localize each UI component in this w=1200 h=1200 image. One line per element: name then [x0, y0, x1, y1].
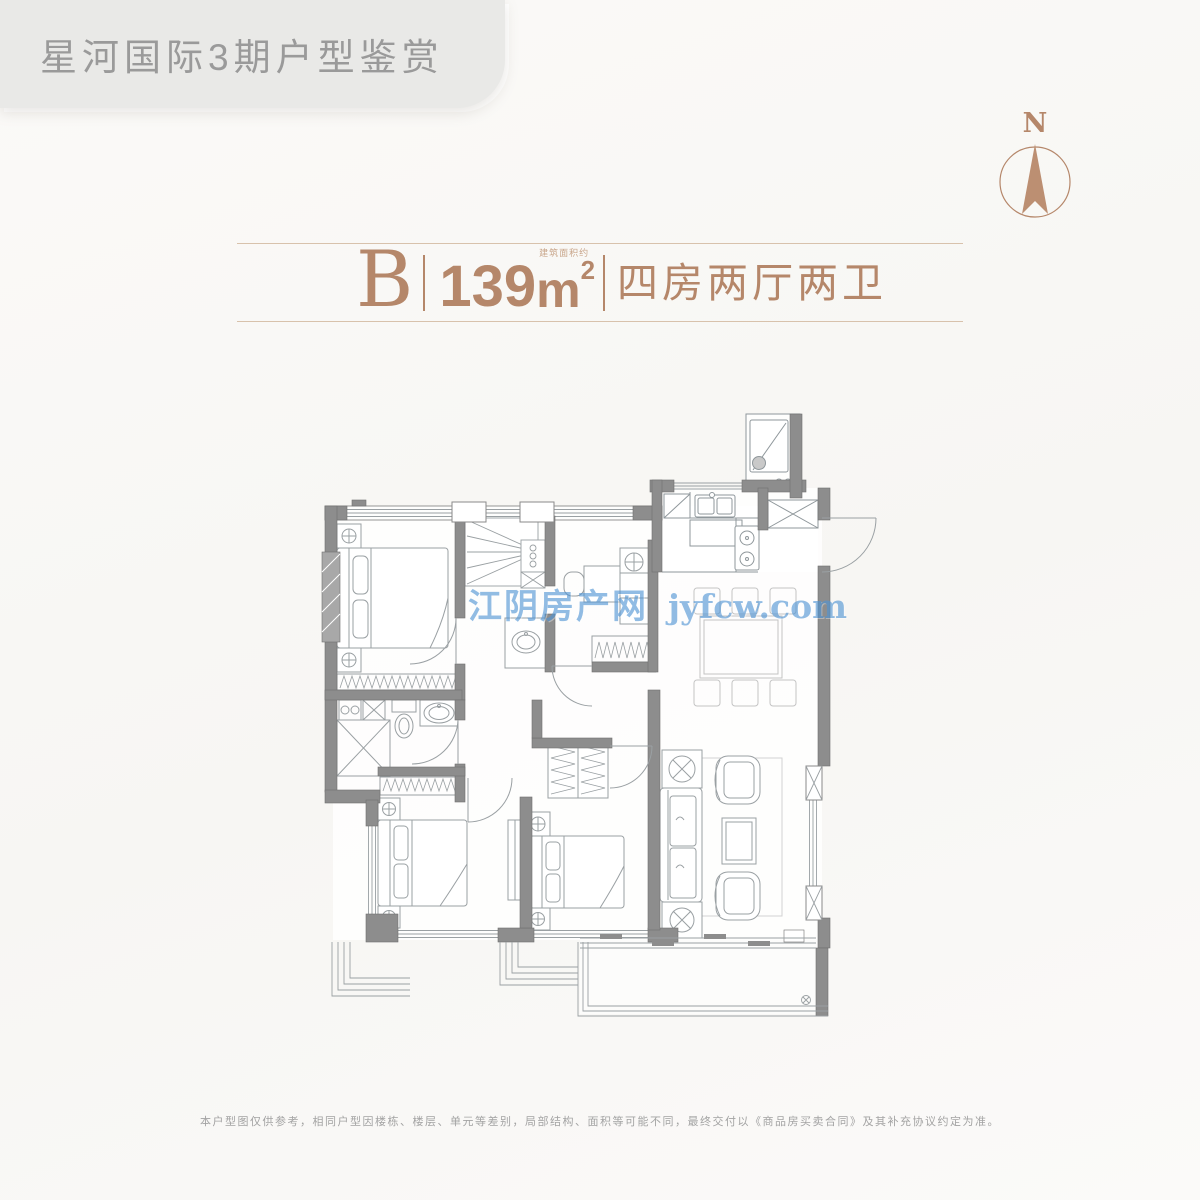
bed	[337, 548, 448, 648]
bed	[378, 820, 467, 906]
bed	[530, 836, 624, 908]
watermark-site-url: jyfcw.com	[668, 587, 847, 626]
vanity	[420, 700, 458, 726]
armchair	[716, 756, 760, 804]
bay-window	[500, 942, 578, 985]
armchair	[716, 872, 760, 920]
watermark-site-name: 江阴房产网	[468, 579, 648, 628]
coffee-table	[722, 818, 756, 864]
stove	[735, 526, 759, 570]
storage-room	[465, 518, 545, 588]
entry-door	[822, 518, 876, 572]
bay-window	[332, 942, 410, 996]
watermark: 江阴房产网 jyfcw.com	[468, 579, 847, 628]
disclaimer-text: 本户型图仅供参考，相同户型因楼栋、楼层、单元等差别，局部结构、面积等可能不同，最…	[0, 1113, 1200, 1129]
